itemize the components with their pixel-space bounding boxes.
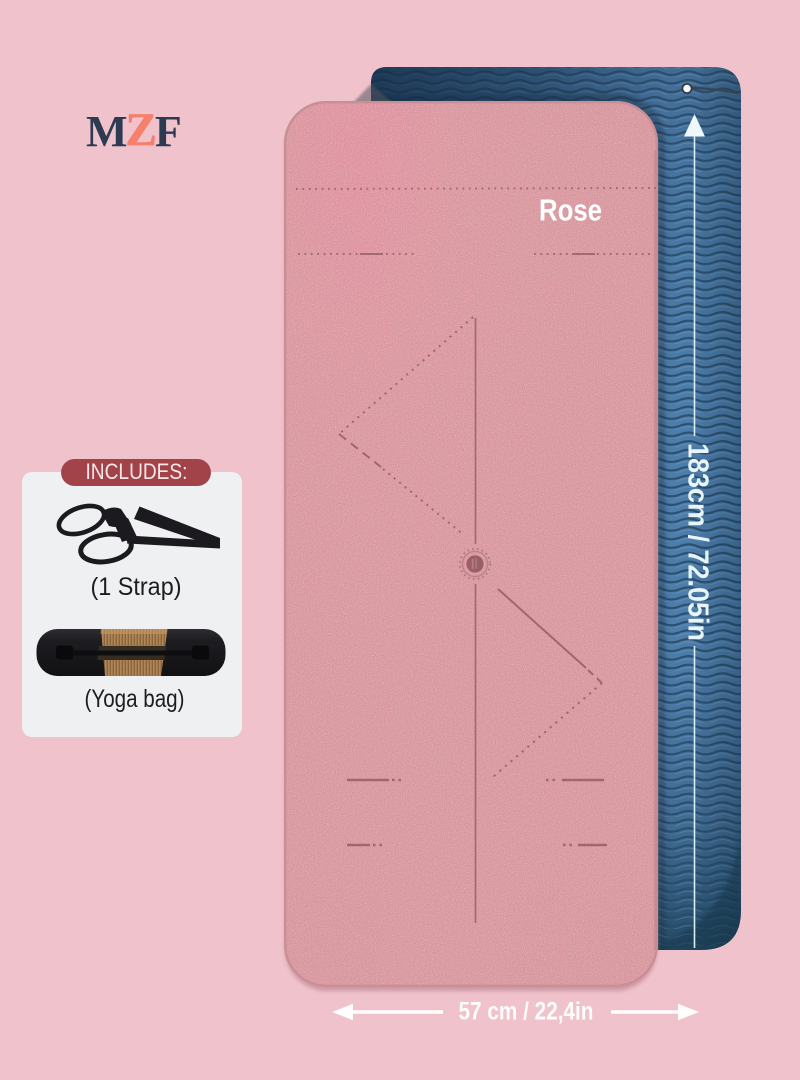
svg-text:57 cm / 22,4in: 57 cm / 22,4in [459, 998, 594, 1026]
svg-text:183cm / 72.05in: 183cm / 72.05in [682, 443, 714, 641]
svg-text:MZF: MZF [86, 104, 180, 156]
svg-text:(1 Strap): (1 Strap) [91, 573, 182, 601]
svg-text:(Yoga bag): (Yoga bag) [85, 685, 185, 713]
svg-text:INCLUDES:: INCLUDES: [86, 459, 188, 484]
svg-text:Rose: Rose [539, 193, 602, 228]
